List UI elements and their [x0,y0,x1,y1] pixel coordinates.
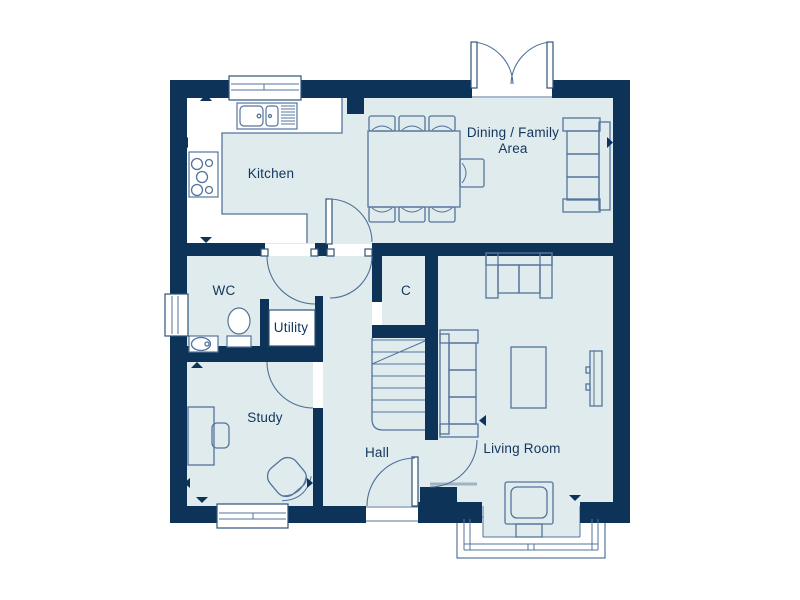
label-dining-line1: Dining / Family [467,125,559,140]
floor-plan-svg: Kitchen Dining / Family Area WC Utility … [0,0,800,600]
toilet [227,308,251,347]
label-living: Living Room [483,441,560,456]
floor-areas [187,98,613,537]
label-dining-line2: Area [498,141,528,156]
hob [189,152,218,197]
label-wc: WC [213,283,236,298]
window-kitchen [229,76,301,100]
french-doors [471,42,553,98]
label-hall: Hall [365,445,389,460]
basin [189,336,218,352]
window-wc [165,294,188,336]
floor-plan: Kitchen Dining / Family Area WC Utility … [0,0,800,600]
label-utility: Utility [274,320,308,335]
label-kitchen: Kitchen [248,166,294,181]
label-cupboard: C [401,283,411,298]
label-study: Study [247,410,283,425]
window-study [217,504,288,528]
kitchen-sink [237,103,297,129]
